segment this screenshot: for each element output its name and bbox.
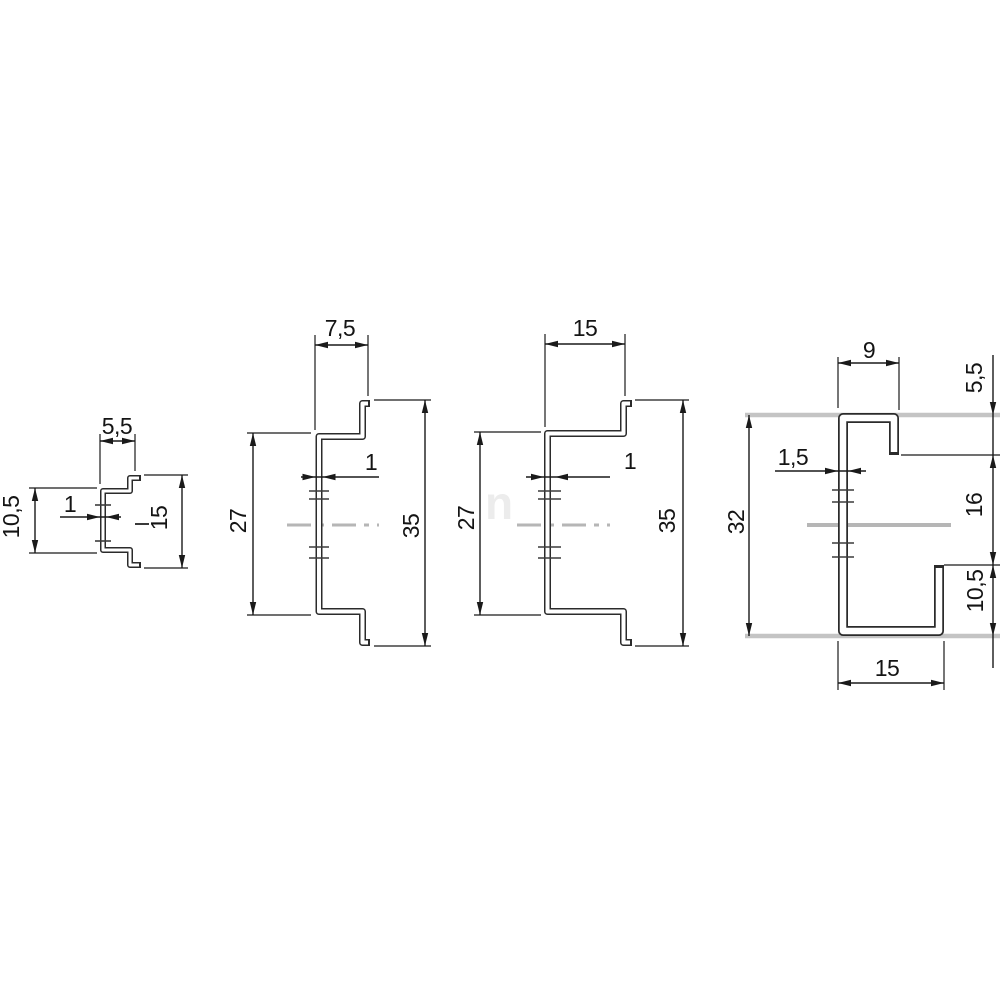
arrowhead [323, 474, 336, 480]
dim-label: 1 [64, 491, 76, 517]
dim-label: 1 [365, 449, 377, 475]
dim-label: 10,5 [0, 496, 24, 539]
dimension-top-width: 9 [838, 337, 899, 410]
arrowhead [477, 432, 483, 445]
arrowhead [422, 400, 428, 413]
dimension-right-column: 5,5 16 10,5 [901, 355, 1000, 668]
profile-1-rail-cross-section: 5,5 10,5 15 1 [0, 413, 188, 568]
dim-label: 35 [398, 514, 424, 539]
dim-label: 15 [146, 506, 172, 531]
dim-label: 35 [654, 509, 680, 534]
profile-4-rail-cross-section: 9 1,5 32 5,5 16 10,5 [723, 337, 1000, 690]
arrowhead [315, 342, 328, 348]
arrowhead [531, 474, 544, 480]
dimension-left-height: 32 [723, 415, 752, 636]
watermark-letter: n [485, 477, 513, 529]
dim-label: 1 [624, 448, 636, 474]
technical-drawing-canvas: n 5,5 10,5 15 [0, 0, 1000, 1000]
dim-label: 9 [863, 337, 875, 363]
arrowhead [990, 552, 996, 565]
arrowhead [680, 633, 686, 646]
arrowhead [32, 488, 38, 501]
dim-label: 7,5 [325, 315, 355, 341]
dimension-thickness: 1,5 [775, 444, 866, 474]
arrowhead [990, 455, 996, 468]
arrowhead [179, 555, 185, 568]
dim-label: 15 [573, 315, 598, 341]
dimension-left-height: 10,5 [0, 488, 97, 553]
profile-2-rail-cross-section: 7,5 27 35 1 [225, 315, 431, 646]
arrowhead [250, 602, 256, 615]
arrowhead [825, 468, 838, 474]
arrowhead [838, 360, 851, 366]
dim-label: 10,5 [962, 570, 988, 613]
dim-label: 32 [723, 510, 749, 535]
arrowhead [886, 360, 899, 366]
dim-label: 1,5 [778, 444, 808, 470]
dim-label: 15 [875, 655, 900, 681]
arrowhead [545, 341, 558, 347]
arrowhead [422, 633, 428, 646]
arrowhead [106, 514, 119, 520]
arrowhead [612, 341, 625, 347]
arrowhead [680, 400, 686, 413]
dimension-right-height: 35 [635, 400, 689, 646]
arrowhead [477, 602, 483, 615]
dimension-top-width: 15 [545, 315, 625, 427]
arrowhead [250, 433, 256, 446]
dimension-bottom-width: 15 [838, 641, 944, 690]
dim-label: 5,5 [102, 413, 132, 439]
rail-outline [319, 404, 370, 643]
arrowhead [87, 514, 100, 520]
rail-cross-sections-drawing: n 5,5 10,5 15 [0, 0, 1000, 1000]
dimension-right-height: 35 [374, 400, 431, 646]
dim-label: 16 [961, 493, 987, 518]
dimension-thickness: 1 [301, 449, 379, 480]
dimension-thickness: 1 [60, 491, 121, 520]
dim-label: 27 [225, 509, 251, 534]
dimension-top-width: 5,5 [100, 413, 135, 484]
arrowhead [32, 540, 38, 553]
dim-label: 27 [453, 506, 479, 531]
arrowhead [179, 475, 185, 488]
arrowhead [990, 565, 996, 578]
arrowhead [931, 680, 944, 686]
rail-outline [548, 404, 633, 643]
arrowhead [303, 474, 316, 480]
rail-outline-core [548, 404, 631, 643]
arrowhead [555, 474, 568, 480]
dimension-right-height: 15 [144, 475, 188, 568]
arrowhead [355, 342, 368, 348]
arrowhead [838, 680, 851, 686]
arrowhead [848, 468, 861, 474]
dimension-thickness: 1 [526, 448, 636, 480]
dim-label: 5,5 [961, 363, 987, 393]
